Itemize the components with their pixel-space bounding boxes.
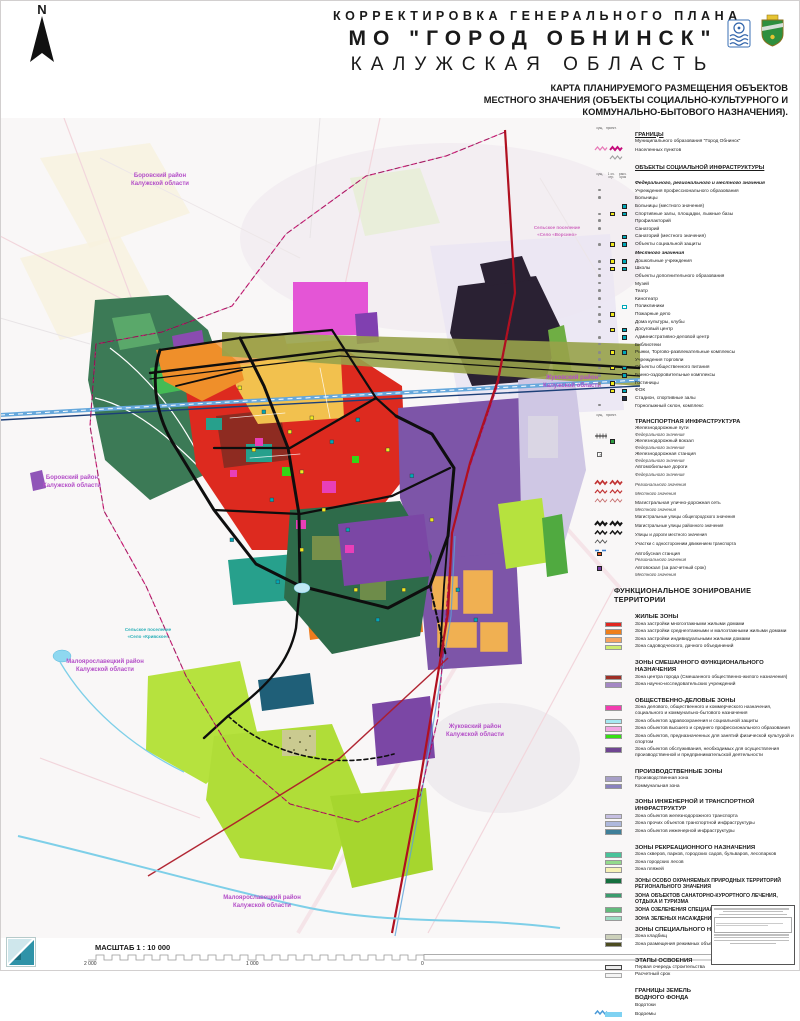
legend-symbol — [594, 350, 635, 355]
legend-item: Местного значения — [594, 251, 796, 257]
legend-item-label: Зона застройки индивидуальными жилыми до… — [635, 637, 796, 643]
subtitle-line-2: МЕСТНОГО ЗНАЧЕНИЯ (ОБЪЕКТЫ СОЦИАЛЬНО-КУЛ… — [420, 94, 788, 106]
legend-marker — [598, 404, 601, 407]
legend-section-title: ОБЩЕСТВЕННО-ДЕЛОВЫЕ ЗОНЫ — [635, 698, 796, 705]
legend-panel: сущ.проект.ГРАНИЦЫМуниципального образов… — [594, 122, 796, 1019]
legend-marker — [598, 196, 601, 199]
legend-marker — [622, 259, 627, 264]
legend-marker — [598, 260, 601, 263]
legend-item-label: Гостиницы — [635, 381, 796, 387]
legend-item: Зона городских лесов — [594, 859, 796, 865]
legend-symbol — [594, 481, 635, 488]
legend-marker — [622, 267, 627, 272]
legend-symbol — [594, 312, 635, 317]
obninsk-emblem-icon — [727, 19, 751, 48]
legend-swatch — [605, 726, 622, 732]
legend-item-label: Участки с односторонним движением трансп… — [635, 541, 796, 546]
legend-marker — [598, 367, 601, 370]
legend-symbol — [594, 211, 635, 216]
legend-section: сущ.проект.ТРАНСПОРТНАЯ ИНФРАСТРУКТУРАЖе… — [594, 414, 796, 576]
legend-item: Объекты дополнительного образования — [594, 274, 796, 280]
legend-item-label: Дошкольные учреждения — [635, 259, 796, 265]
legend-marker — [610, 328, 615, 333]
legend-item-label: Железнодорожная станцияФедерального знач… — [635, 452, 796, 463]
legend-section: ЗОНЫ СМЕШАННОГО ФУНКЦИОНАЛЬНОГО НАЗНАЧЕН… — [594, 660, 796, 688]
legend-line-symbol — [594, 541, 608, 548]
legend-item-label: Санаторий — [635, 227, 796, 233]
legend-item: Профилакторий — [594, 219, 796, 225]
legend-swatch — [605, 675, 622, 681]
legend-marker — [622, 305, 627, 310]
legend-item: Зона садоводческого, дачного объединений — [594, 644, 796, 650]
district-label: Калужской области — [233, 902, 291, 909]
legend-line-symbol — [594, 532, 608, 539]
legend-swatch — [605, 622, 622, 628]
legend-item: Федерального, регионального и местного з… — [594, 181, 796, 187]
legend-item-label: Объекты общественного питания — [635, 365, 796, 371]
legend-item: Зона объектов железнодорожного транспорт… — [594, 813, 796, 819]
legend-item-label: Зона пляжей — [635, 867, 796, 873]
legend-item: Федерального значения — [594, 472, 796, 479]
legend-line-symbol — [594, 426, 608, 433]
legend-marker — [598, 351, 601, 354]
legend-marker — [598, 243, 601, 246]
legend-item-label: Музей — [635, 281, 796, 287]
legend-item-label: ЗОНЫ ОСОБО ОХРАНЯЕМЫХ ПРИРОДНЫХ ТЕРРИТОР… — [635, 878, 796, 891]
legend-symbol — [594, 188, 635, 191]
district-label: Калужской области — [543, 382, 601, 389]
legend-symbol — [594, 204, 635, 209]
legend-item: ФОК — [594, 388, 796, 394]
legend-item-label: Рынки, Торгово-развлекательные комплексы — [635, 350, 796, 356]
district-label: Малоярославецкий район — [66, 658, 144, 665]
title-block — [711, 905, 795, 965]
legend-item-label: Горнолыжный склон, комплекс — [635, 403, 796, 409]
settlement-label: Сельское поселение — [125, 627, 172, 632]
legend-symbol — [594, 893, 635, 899]
legend-item: Зона научно-исследовательских учреждений — [594, 682, 796, 688]
legend-item: Коммунальная зона — [594, 783, 796, 789]
legend-section: ГРАНИЦЫ ЗЕМЕЛЬВОДНОГО ФОНДАВодотокиВодое… — [594, 988, 796, 1017]
district-label: Жуковский район — [545, 374, 599, 381]
north-arrow: N — [26, 3, 58, 67]
legend-item: Зона застройки среднеэтажными и малоэтаж… — [594, 629, 796, 635]
legend-marker — [598, 213, 601, 216]
legend-item: Магистральная улично-дорожная сетьМестно… — [594, 501, 796, 512]
legend-symbol — [594, 490, 635, 497]
legend-section-title: ТРАНСПОРТНАЯ ИНФРАСТРУКТУРА — [635, 419, 796, 426]
legend-item: ЗОНЫ ОСОБО ОХРАНЯЕМЫХ ПРИРОДНЫХ ТЕРРИТОР… — [594, 878, 796, 891]
legend-item: ЗОНА ОБЪЕКТОВ САНАТОРНО-КУРОРТНОГО ЛЕЧЕН… — [594, 893, 796, 906]
legend-item: Зона объектов здравоохранения и социальн… — [594, 718, 796, 724]
legend-item: Зона объектов инженерной инфраструктуры — [594, 829, 796, 835]
legend-section-title: ЗОНЫ РЕКРЕАЦИОННОГО НАЗНАЧЕНИЯ — [635, 845, 796, 852]
legend-item-label: Поликлиники — [635, 304, 796, 310]
legend-item: Первая очередь строительства — [594, 965, 796, 971]
legend-marker — [622, 366, 627, 371]
legend-item-label: Школы — [635, 266, 796, 272]
legend-line-symbol — [594, 514, 608, 521]
legend-item-label: Профилакторий — [635, 219, 796, 225]
legend-line-symbol — [609, 514, 623, 521]
legend-item: Водоемы — [594, 1011, 796, 1017]
legend-item: Больницы — [594, 196, 796, 202]
legend-item-label: Зона прочих объектов транспортной инфрас… — [635, 821, 796, 827]
legend-symbol — [594, 852, 635, 858]
legend-item-label: Расчетный срок — [635, 972, 796, 978]
legend-item-label: Регионального значения — [635, 481, 796, 486]
legend-symbol — [594, 566, 635, 571]
legend-item: Учреждения торговли — [594, 358, 796, 364]
legend-marker — [622, 350, 627, 355]
legend-symbol — [594, 829, 635, 835]
legend-section-title: ЖИЛЫЕ ЗОНЫ — [635, 614, 796, 621]
legend-item: Зона прочих объектов транспортной инфрас… — [594, 821, 796, 827]
legend-item: Железнодорожный вокзалФедерального значе… — [594, 439, 796, 450]
legend-item-label: Железнодорожные путиФедерального значени… — [635, 426, 796, 437]
legend-swatch — [605, 942, 622, 948]
page-title: МО "ГОРОД ОБНИНСК" — [333, 27, 733, 51]
legend-symbol — [594, 452, 635, 457]
legend-symbol — [594, 859, 635, 865]
legend-symbol — [594, 396, 635, 401]
legend-symbol — [594, 523, 635, 530]
legend-symbol — [594, 734, 635, 740]
legend-item-label: Санаторий (местного значения) — [635, 234, 796, 240]
legend-section: ПРОИЗВОДСТВЕННЫЕ ЗОНЫПроизводственная зо… — [594, 769, 796, 790]
district-label: Калужской области — [43, 482, 101, 489]
legend-marker — [598, 358, 601, 361]
legend-item: Больницы (местного значения) — [594, 204, 796, 210]
legend-item: Пожарные депо — [594, 312, 796, 318]
legend-item: Участки с односторонним движением трансп… — [594, 541, 796, 548]
legend-swatch — [605, 734, 622, 740]
legend-item: Поликлиники — [594, 304, 796, 310]
legend-item: Спортивные залы, площадки, лыжные базы — [594, 211, 796, 217]
legend-section-title: ГРАНИЦЫ ЗЕМЕЛЬ — [635, 988, 796, 995]
legend-symbol — [594, 259, 635, 264]
legend-item-label: Банно-оздоровительные комплексы — [635, 373, 796, 379]
legend-marker — [622, 212, 627, 217]
legend-symbol — [594, 867, 635, 873]
legend-swatch — [605, 645, 622, 651]
legend-marker — [622, 335, 627, 340]
map-subtitle: КАРТА ПЛАНИРУЕМОГО РАЗМЕЩЕНИЯ ОБЪЕКТОВ М… — [420, 82, 788, 118]
legend-item: Школы — [594, 266, 796, 272]
legend-item-label: Кинотеатр — [635, 297, 796, 303]
legend-line-symbol — [609, 139, 623, 146]
legend-line-symbol — [594, 473, 608, 480]
legend-symbol — [594, 682, 635, 688]
legend-symbol — [594, 219, 635, 222]
legend-item-label: Магистральные улицы районного значения — [635, 523, 796, 528]
legend-section: ОБЪЕКТЫ СОЦИАЛЬНОЙ ИНФРАСТРУКТУРЫсущ.1 о… — [594, 165, 796, 410]
legend-item: Зона центра города (Смешанного обществен… — [594, 674, 796, 680]
legend-item-label: Местного значения — [635, 251, 796, 257]
legend-swatch — [605, 934, 622, 940]
legend-item-label: Зона садоводческого, дачного объединений — [635, 644, 796, 650]
legend-symbol — [594, 373, 635, 378]
legend-marker — [598, 343, 601, 346]
legend-item-label: Муниципального образования "Город Обнинс… — [635, 138, 796, 144]
legend-symbol — [594, 621, 635, 627]
legend-symbol — [594, 297, 635, 300]
legend-section: ЖИЛЫЕ ЗОНЫЗона застройки многоэтажными ж… — [594, 614, 796, 650]
legend-line-symbol — [609, 491, 623, 498]
north-arrow-icon — [29, 16, 55, 62]
legend-item: Улицы и дороги местного значения — [594, 532, 796, 539]
settlement-label: «Село «Ворсино» — [537, 232, 577, 237]
legend-symbol — [594, 551, 635, 556]
legend-item-label: Водоемы — [635, 1011, 796, 1017]
legend-symbol — [594, 388, 635, 393]
legend-item: Санаторий (местного значения) — [594, 234, 796, 240]
map: Боровский район Калужской области Боровс… — [0, 118, 640, 938]
legend-symbol — [594, 783, 635, 789]
legend-item-label: Административно-деловой центр — [635, 335, 796, 341]
legend-item: Зона объектов высшего и среднего професс… — [594, 726, 796, 732]
legend-item-label: Больницы — [635, 196, 796, 202]
legend-item: Зона застройки индивидуальными жилыми до… — [594, 637, 796, 643]
legend-symbol — [594, 532, 635, 539]
legend-symbol — [594, 541, 635, 548]
legend-symbol — [594, 138, 635, 145]
legend-symbol — [594, 705, 635, 711]
legend-symbol — [594, 637, 635, 643]
legend-symbol — [594, 403, 635, 406]
legend-line-symbol — [609, 482, 623, 489]
legend-symbol — [594, 644, 635, 650]
legend-marker — [610, 259, 615, 264]
legend-item: Учреждения профессионального образования — [594, 188, 796, 194]
legend-item: Муниципального образования "Город Обнинс… — [594, 138, 796, 145]
legend-item: Административно-деловой центр — [594, 335, 796, 341]
legend-item-label: Улицы и дороги местного значения — [635, 532, 796, 537]
legend-item: Автобусная станцияРегионального значения — [594, 551, 796, 562]
legend-item-label: Первая очередь строительства — [635, 965, 796, 971]
legend-section: сущ.проект.ГРАНИЦЫМуниципального образов… — [594, 127, 796, 155]
legend-swatch — [605, 784, 622, 790]
legend-item-label: Местного значения — [635, 490, 796, 495]
legend-item-label: Магистральная улично-дорожная сетьМестно… — [635, 501, 796, 512]
legend-section: ОБЩЕСТВЕННО-ДЕЛОВЫЕ ЗОНЫЗона делового, о… — [594, 698, 796, 759]
legend-item: Железнодорожные путиФедерального значени… — [594, 426, 796, 437]
legend-line-symbol — [609, 473, 623, 480]
district-label: Калужской области — [76, 666, 134, 673]
legend-swatch — [605, 705, 622, 711]
legend-marker — [610, 350, 615, 355]
legend-symbol — [594, 915, 635, 921]
legend-symbol — [594, 147, 635, 154]
legend-item-label: Зона научно-исследовательских учреждений — [635, 682, 796, 688]
scale-tick: 1 000 — [246, 961, 259, 967]
legend-item: Гостиницы — [594, 381, 796, 387]
legend-symbol — [594, 234, 635, 239]
legend-item-label: Федерального значения — [635, 472, 796, 477]
legend-marker — [622, 396, 627, 401]
subtitle-line-3: КОММУНАЛЬНО-БЫТОВОГО НАЗНАЧЕНИЯ). — [420, 106, 788, 118]
legend-section-title: ЗОНЫ СМЕШАННОГО ФУНКЦИОНАЛЬНОГО НАЗНАЧЕН… — [635, 660, 796, 674]
legend-item: Магистральные улицы общегородского значе… — [594, 514, 796, 521]
legend-item-label: Объекты дополнительного образования — [635, 274, 796, 280]
legend-symbol — [594, 747, 635, 753]
legend-marker — [622, 242, 627, 247]
legend-item-label: Железнодорожный вокзалФедерального значе… — [635, 439, 796, 450]
legend-section: ФУНКЦИОНАЛЬНОЕ ЗОНИРОВАНИЕ ТЕРРИТОРИИ — [594, 587, 796, 605]
legend-item: Досуговый центр — [594, 327, 796, 333]
legend-marker — [598, 282, 601, 285]
legend-section: ЗОНЫ РЕКРЕАЦИОННОГО НАЗНАЧЕНИЯЗона сквер… — [594, 845, 796, 873]
legend-item: Банно-оздоровительные комплексы — [594, 373, 796, 379]
legend-item-label: Зона делового, общественного и коммерчес… — [635, 705, 796, 717]
legend-marker — [610, 366, 615, 371]
legend-swatch — [605, 821, 622, 827]
legend-marker — [597, 566, 602, 571]
legend-item: Объекты социальной защиты — [594, 242, 796, 248]
legend-symbol — [594, 813, 635, 819]
legend-symbol — [594, 907, 635, 913]
legend-symbol — [594, 365, 635, 370]
legend-item-label: Производственная зона — [635, 776, 796, 782]
legend-swatch — [605, 1012, 622, 1018]
legend-item-label: ФОК — [635, 388, 796, 394]
legend-item-label: Зона застройки среднеэтажными и малоэтаж… — [635, 629, 796, 635]
legend-marker — [598, 227, 601, 230]
legend-item-label: Учреждения торговли — [635, 358, 796, 364]
legend-item-label: Зона объектов, предназначенных для занят… — [635, 734, 796, 746]
legend-symbol — [594, 674, 635, 680]
title-block-header: КОРРЕКТИРОВКА ГЕНЕРАЛЬНОГО ПЛАНА МО "ГОР… — [333, 9, 733, 76]
legend-symbol — [594, 514, 635, 521]
legend-item-label: Автобусная станцияРегионального значения — [635, 551, 796, 562]
legend-swatch — [605, 829, 622, 835]
legend-item-label: Учреждения профессионального образования — [635, 188, 796, 194]
legend-section-title: ФУНКЦИОНАЛЬНОЕ ЗОНИРОВАНИЕ ТЕРРИТОРИИ — [614, 587, 796, 605]
title-line-3: КАЛУЖСКАЯ ОБЛАСТЬ — [333, 54, 733, 76]
legend-item-label: Зона городских лесов — [635, 859, 796, 865]
legend-item: Кинотеатр — [594, 297, 796, 303]
legend-item: Зона объектов обслуживания, необходимых … — [594, 747, 796, 759]
district-label: Калужской области — [131, 180, 189, 187]
legend-symbol — [594, 358, 635, 361]
legend-section-title: ГРАНИЦЫ — [635, 132, 796, 139]
legend-marker — [610, 267, 615, 272]
legend-item-label: Водотоки — [635, 1002, 796, 1008]
legend-swatch — [605, 719, 622, 725]
legend-item: Дошкольные учреждения — [594, 259, 796, 265]
legend-item: Производственная зона — [594, 776, 796, 782]
legend-item: Рынки, Торгово-развлекательные комплексы — [594, 350, 796, 356]
legend-item: Водотоки — [594, 1002, 796, 1009]
legend-symbol — [594, 320, 635, 323]
legend-item-label: Зона центра города (Смешанного обществен… — [635, 674, 796, 680]
legend-item-label: Коммунальная зона — [635, 783, 796, 789]
legend-marker — [622, 389, 627, 394]
legend-item-label: Зона объектов железнодорожного транспорт… — [635, 813, 796, 819]
legend-item: Магистральные улицы районного значения — [594, 523, 796, 530]
legend-marker — [598, 382, 601, 385]
legend-item-label: Магистральные улицы общегородского значе… — [635, 514, 796, 519]
legend-marker — [622, 373, 627, 378]
legend-swatch — [605, 852, 622, 858]
legend-symbol — [594, 227, 635, 230]
legend-line-symbol — [594, 482, 608, 489]
legend-item: Автовокзал (за расчетный срок)Местного з… — [594, 566, 796, 577]
legend-item: Театр — [594, 289, 796, 295]
legend-symbol — [594, 1002, 635, 1009]
legend-marker — [622, 235, 627, 240]
legend-marker — [598, 219, 601, 222]
legend-symbol — [594, 726, 635, 732]
legend-marker — [598, 313, 601, 316]
district-label: Малоярославецкий район — [223, 894, 301, 901]
legend-marker — [598, 374, 601, 377]
legend-symbol — [594, 776, 635, 782]
legend-item-label: Спортивные залы, площадки, лыжные базы — [635, 211, 796, 217]
legend-symbol — [594, 281, 635, 284]
legend-swatch — [605, 893, 622, 899]
scale-tick: 0 — [421, 961, 424, 967]
publisher-logo — [6, 937, 36, 967]
legend-marker — [598, 189, 601, 192]
scale-tick: 2 000 — [84, 961, 97, 967]
district-label: Боровский район — [134, 172, 187, 179]
legend-item: Зона объектов, предназначенных для занят… — [594, 734, 796, 746]
legend-symbol — [594, 342, 635, 345]
legend-item: Регионального значения — [594, 481, 796, 488]
legend-marker — [598, 320, 601, 323]
legend-symbol — [594, 335, 635, 340]
legend-symbol — [594, 878, 635, 884]
legend-symbol — [594, 965, 635, 971]
legend-section: ЗОНЫ ИНЖЕНЕРНОЙ И ТРАНСПОРТНОЙ ИНФРАСТРУ… — [594, 799, 796, 834]
legend-item: Автомобильные дороги — [594, 465, 796, 471]
legend-symbol — [594, 242, 635, 247]
north-label: N — [26, 3, 58, 16]
legend-item-label: Зона скверов, парков, городских садов, б… — [635, 852, 796, 858]
legend-symbol — [594, 472, 635, 479]
legend-item-label: Зона застройки многоэтажными жилыми дома… — [635, 621, 796, 627]
legend-swatch — [605, 973, 622, 979]
legend-swatch — [605, 860, 622, 866]
legend-item: Железнодорожная станцияФедерального знач… — [594, 452, 796, 463]
district-label: Жуковский район — [448, 723, 502, 730]
legend-marker — [610, 312, 615, 317]
legend-item-label: Дома культуры, клубы — [635, 320, 796, 326]
legend-line-symbol — [594, 1003, 608, 1010]
legend-item-label: Досуговый центр — [635, 327, 796, 333]
legend-item-label: Стадион, спортивные залы — [635, 396, 796, 402]
legend-item: Зона делового, общественного и коммерчес… — [594, 705, 796, 717]
legend-swatch — [605, 629, 622, 635]
legend-item: Расчетный срок — [594, 972, 796, 978]
legend-marker — [597, 552, 602, 557]
legend-item: Музей — [594, 281, 796, 287]
title-line-1: КОРРЕКТИРОВКА ГЕНЕРАЛЬНОГО ПЛАНА — [333, 9, 733, 23]
subtitle-line-1: КАРТА ПЛАНИРУЕМОГО РАЗМЕЩЕНИЯ ОБЪЕКТОВ — [420, 82, 788, 94]
legend-item: Дома культуры, клубы — [594, 320, 796, 326]
settlement-label: «Село «Кривское» — [128, 634, 169, 639]
legend-marker — [610, 242, 615, 247]
legend-symbol — [594, 289, 635, 292]
legend-item-label: Автовокзал (за расчетный срок)Местного з… — [635, 566, 796, 577]
legend-item: Библиотеки — [594, 342, 796, 348]
legend-swatch — [605, 637, 622, 643]
legend-symbol — [594, 821, 635, 827]
scale-label: МАСШТАБ 1 : 10 000 — [95, 943, 170, 952]
legend-item-label: Населенных пунктов — [635, 147, 796, 153]
legend-symbol — [594, 274, 635, 277]
